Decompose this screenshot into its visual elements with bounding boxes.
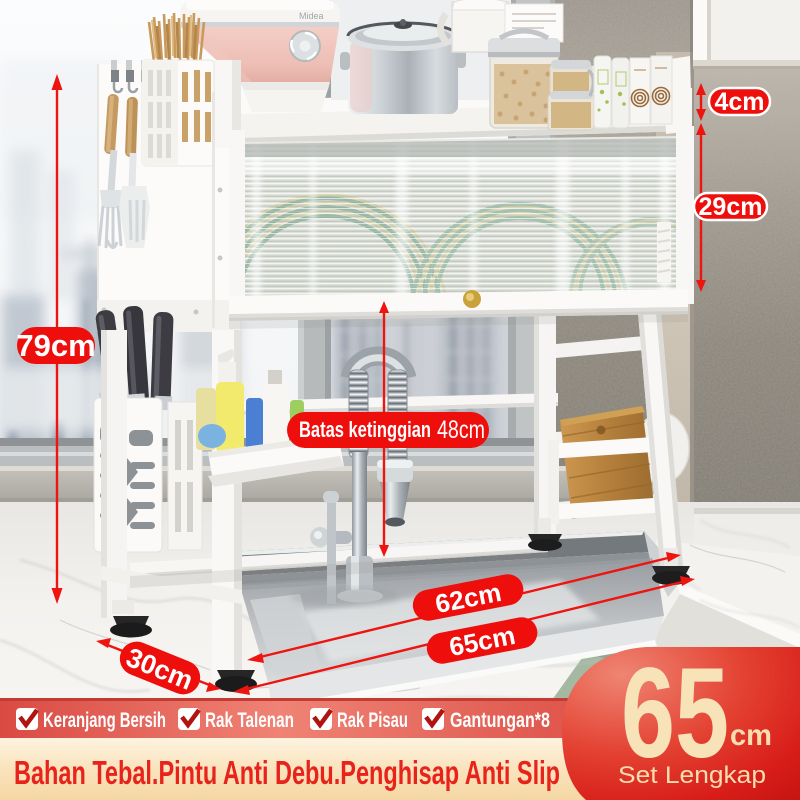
svg-text:79cm: 79cm	[16, 328, 95, 363]
svg-text:4cm: 4cm	[714, 88, 764, 116]
svg-text:Gantungan*8: Gantungan*8	[450, 709, 550, 732]
svg-text:29cm: 29cm	[699, 193, 763, 221]
svg-text:Batas ketinggian: Batas ketinggian	[299, 417, 431, 442]
svg-text:Bahan Tebal.Pintu Anti Debu.Pe: Bahan Tebal.Pintu Anti Debu.Penghisap An…	[14, 754, 560, 791]
svg-text:Keranjang Bersih: Keranjang Bersih	[43, 709, 166, 732]
svg-text:48cm: 48cm	[437, 416, 485, 444]
svg-text:Rak Talenan: Rak Talenan	[205, 709, 294, 732]
svg-text:Midea: Midea	[299, 11, 324, 21]
svg-text:cm: cm	[730, 719, 772, 752]
svg-text:Rak Pisau: Rak Pisau	[337, 709, 408, 732]
svg-text:Set Lengkap: Set Lengkap	[618, 762, 766, 789]
